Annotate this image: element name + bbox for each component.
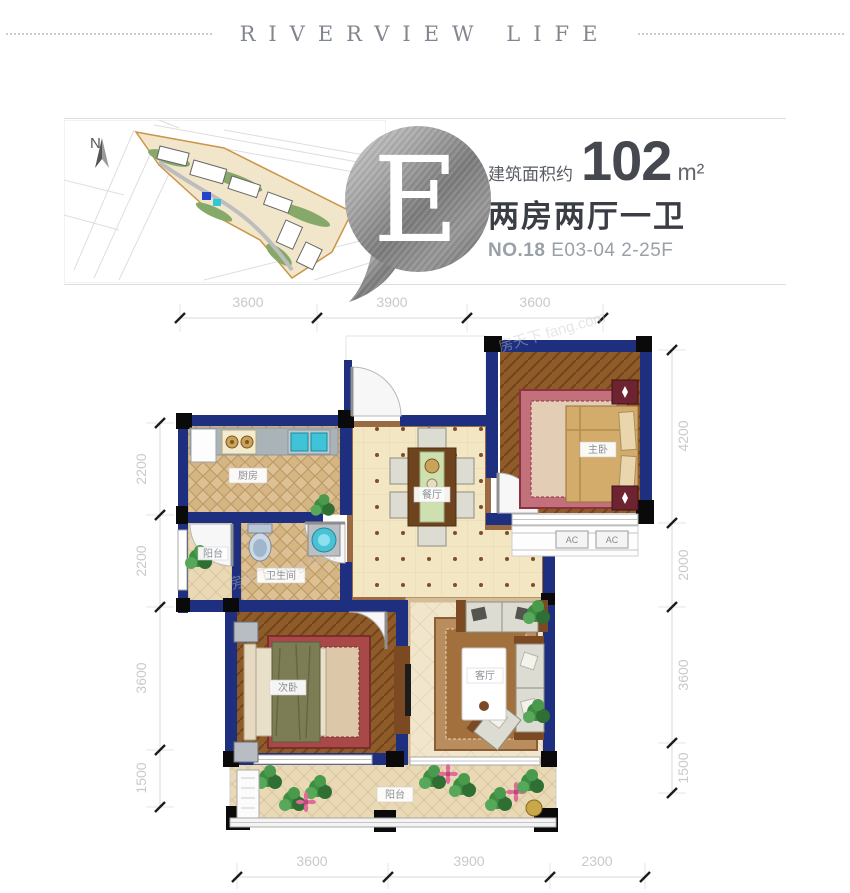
dimension-label: 2300 — [581, 853, 612, 869]
svg-text:主卧: 主卧 — [588, 443, 608, 456]
dining-chair — [418, 428, 446, 448]
unit-badge-letter: E — [373, 131, 459, 269]
area-unit: m² — [677, 159, 704, 186]
pillow — [619, 411, 637, 450]
page: RIVERVIEW LIFE — [0, 0, 850, 893]
master-nightstand — [612, 380, 638, 404]
dining-chair — [456, 492, 474, 518]
unit-info: 建筑面积约 102 m² 两房两厅一卫 NO.18 E03-04 2-25F — [488, 133, 704, 262]
dimension-label: 3600 — [675, 659, 691, 690]
unit-badge: E — [342, 117, 494, 309]
room-label-living: 客厅 — [467, 668, 503, 683]
dimension-right: 4200 2000 3600 1500 — [658, 345, 691, 798]
room-label-second-bedroom: 次卧 — [270, 680, 306, 695]
dimension-label: 3600 — [133, 662, 149, 693]
sofa-long — [514, 636, 544, 740]
dimension-bottom: 3600 3900 2300 — [232, 853, 650, 889]
svg-text:厨房: 厨房 — [238, 469, 258, 482]
dimension-label: 3600 — [519, 294, 550, 310]
dimension-label: 2000 — [675, 549, 691, 580]
room-label-service-balcony: 阳台 — [198, 547, 228, 560]
dimension-label: 2200 — [133, 453, 149, 484]
svg-text:客厅: 客厅 — [475, 669, 495, 682]
svg-text:阳台: 阳台 — [385, 788, 405, 801]
svg-text:餐厅: 餐厅 — [422, 488, 442, 501]
room-label-dining: 餐厅 — [414, 487, 450, 502]
room-label-balcony: 阳台 — [377, 787, 413, 802]
ac-label: AC — [566, 535, 579, 545]
dimension-label: 3600 — [232, 294, 263, 310]
area-value: 102 — [581, 133, 671, 189]
balcony-ac-unit — [237, 770, 259, 818]
fridge — [191, 429, 216, 462]
living-balcony-door — [410, 757, 540, 765]
service-balcony-window — [178, 530, 187, 590]
dimension-label: 3600 — [296, 853, 327, 869]
dining-chair — [390, 492, 408, 518]
coffee-table — [462, 648, 506, 720]
dining-chair — [390, 458, 408, 484]
unit-number-detail: E03-04 2-25F — [551, 240, 673, 261]
dimension-label: 3900 — [453, 853, 484, 869]
dimension-label: 2200 — [133, 545, 149, 576]
master-nightstand — [612, 486, 638, 510]
area-line: 建筑面积约 102 m² — [488, 133, 704, 189]
second-bedroom-window — [254, 755, 372, 764]
svg-text:阳台: 阳台 — [203, 547, 223, 560]
dining-chair — [418, 526, 446, 546]
ac-platform: AC AC — [512, 526, 638, 556]
planter-pot — [526, 800, 542, 816]
stove — [222, 430, 256, 454]
ac-label: AC — [606, 535, 619, 545]
area-label: 建筑面积约 — [488, 160, 573, 185]
room-label-kitchen: 厨房 — [229, 468, 267, 483]
dimension-left: 2200 2200 3600 1500 — [133, 418, 174, 812]
unit-number-prefix: NO.18 — [488, 240, 545, 261]
kitchen-sink — [288, 430, 330, 454]
dimension-label: 4200 — [675, 420, 691, 451]
dimension-label: 1500 — [133, 762, 149, 793]
balcony-railing — [230, 818, 556, 827]
toilet — [248, 524, 272, 561]
nightstand — [234, 622, 258, 642]
nightstand — [234, 742, 258, 762]
dining-chair — [456, 458, 474, 484]
room-label-master-bedroom: 主卧 — [580, 442, 616, 457]
svg-text:次卧: 次卧 — [278, 681, 298, 694]
layout-text: 两房两厅一卫 — [488, 191, 704, 236]
tv-cabinet — [394, 646, 411, 734]
dimension-label: 1500 — [675, 752, 691, 783]
master-window — [512, 514, 638, 525]
unit-number: NO.18 E03-04 2-25F — [488, 240, 704, 262]
